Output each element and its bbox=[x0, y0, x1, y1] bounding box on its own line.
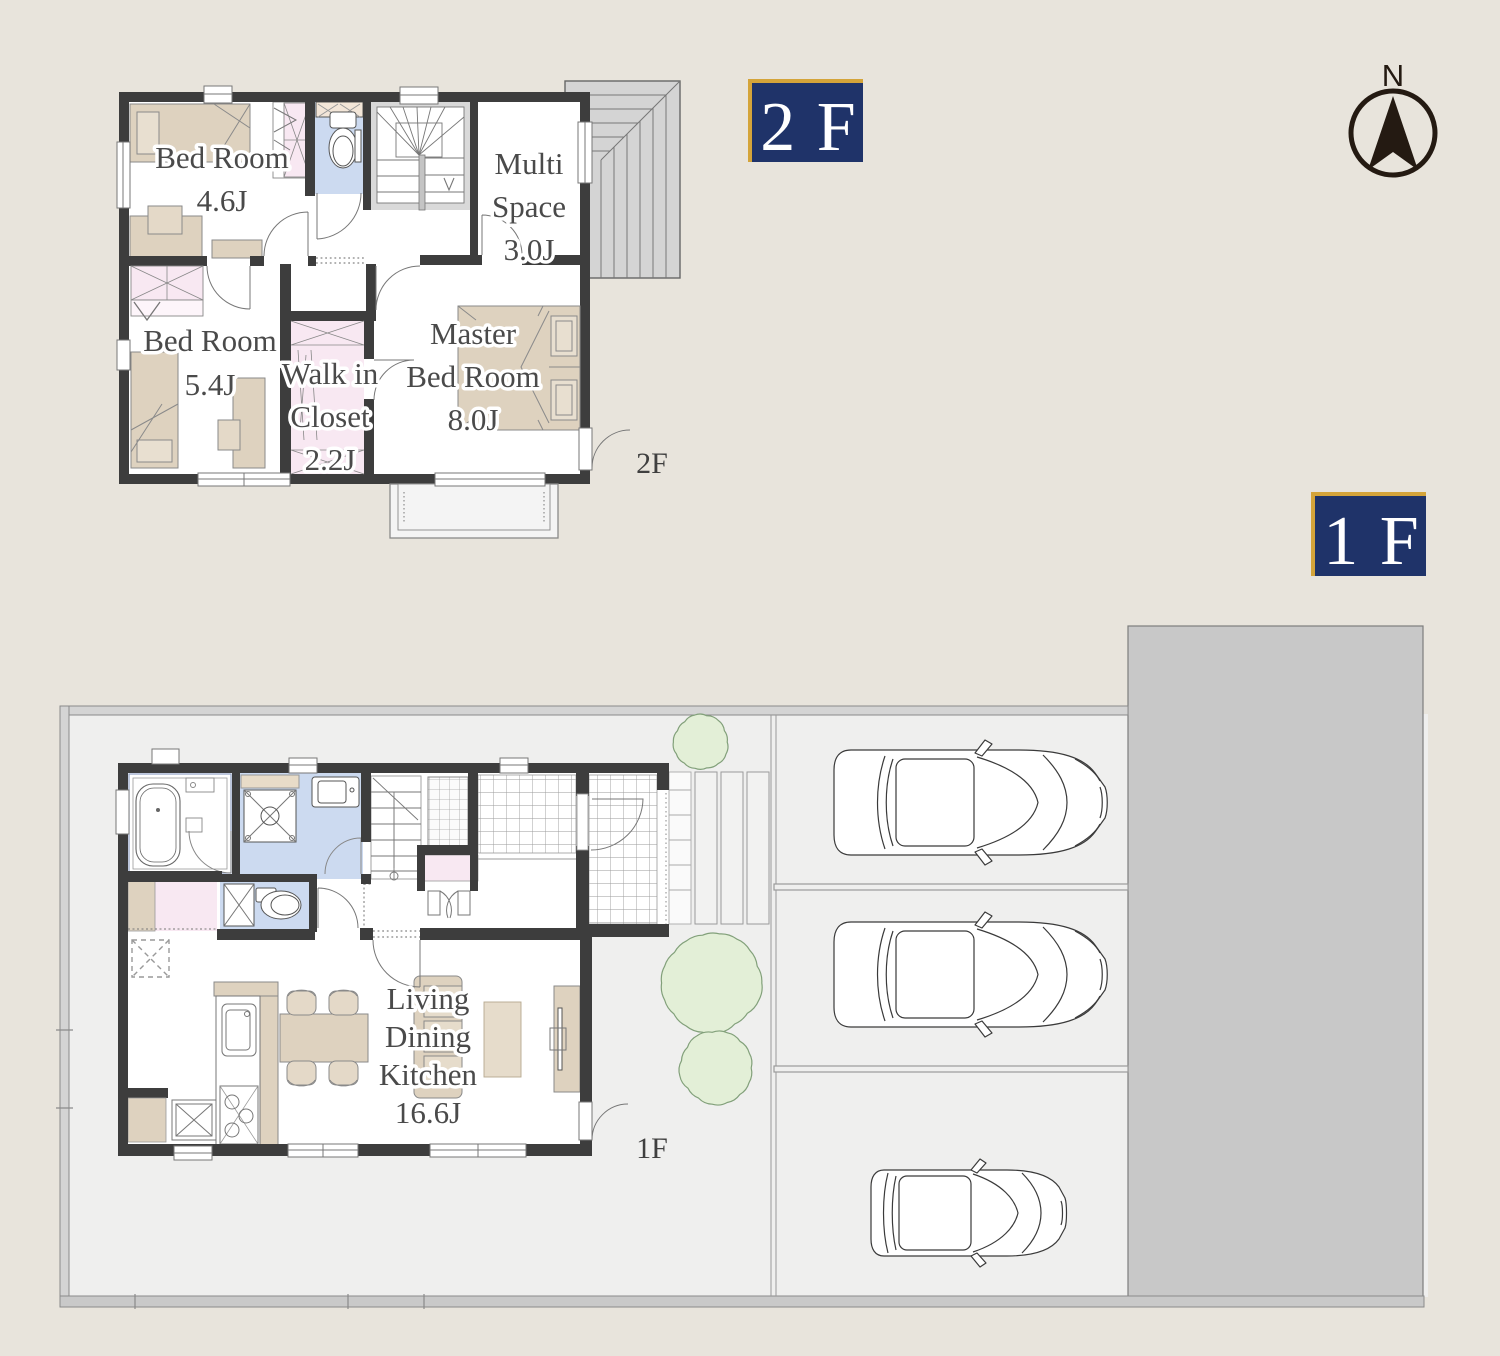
svg-text:Walk in: Walk in bbox=[282, 356, 379, 391]
svg-text:Closet: Closet bbox=[290, 399, 370, 434]
svg-text:1 F: 1 F bbox=[1323, 503, 1420, 580]
svg-text:Master: Master bbox=[430, 316, 517, 351]
svg-text:N: N bbox=[1382, 58, 1404, 93]
svg-text:Bed Room: Bed Room bbox=[143, 323, 276, 358]
svg-text:Bed Room: Bed Room bbox=[406, 359, 539, 394]
svg-text:1F: 1F bbox=[636, 1132, 668, 1165]
svg-text:5.4J: 5.4J bbox=[185, 367, 236, 402]
svg-text:2 F: 2 F bbox=[760, 89, 857, 166]
svg-text:4.6J: 4.6J bbox=[197, 183, 248, 218]
svg-text:8.0J: 8.0J bbox=[448, 402, 499, 437]
svg-text:Multi: Multi bbox=[495, 146, 564, 181]
svg-text:Living: Living bbox=[387, 981, 470, 1016]
svg-text:16.6J: 16.6J bbox=[395, 1095, 461, 1130]
svg-text:Kitchen: Kitchen bbox=[379, 1057, 478, 1092]
svg-text:2.2J: 2.2J bbox=[305, 442, 356, 477]
svg-text:3.0J: 3.0J bbox=[504, 232, 555, 267]
svg-text:Bed Room: Bed Room bbox=[155, 140, 288, 175]
svg-text:Space: Space bbox=[492, 189, 566, 224]
svg-text:Dining: Dining bbox=[385, 1019, 471, 1054]
svg-text:2F: 2F bbox=[636, 447, 668, 480]
